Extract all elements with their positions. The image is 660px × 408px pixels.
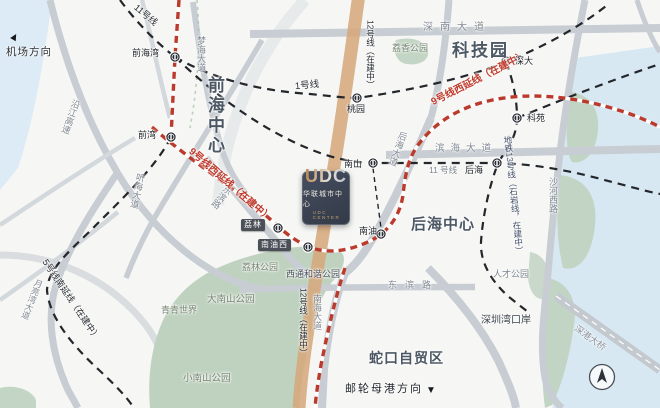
road-dongbin [240,287,475,290]
district-tech-park: 科技园 [452,42,509,59]
park-xiaonanshan-label: 小南山公园 [183,374,231,384]
park-xitong-label: 西通和谐公园 [286,270,340,279]
line5-vertical-underlay [171,0,179,137]
park-rencai-label: 人才公园 [493,270,529,279]
road-shennan-label: 深南大道 [423,23,491,33]
station-icon-keyuan [512,113,522,123]
road-dongbin-label: 东滨路 [388,281,439,290]
station-label-houhai: 后海 [465,166,483,175]
park-dananshan-label: 大南山公园 [207,295,255,305]
line11-label-houhai: 11 号线 [429,166,457,175]
district-shekou-ftz: 蛇口自贸区 [369,351,444,365]
station-icon-nanshan [368,158,378,168]
district-qianhai-center: 前海中心 [206,76,223,156]
station-icon-nanyouxi [303,242,313,252]
line1-label: 1号线 [295,80,320,92]
shenzhen-bay-port-label: 深圳湾口岸 [481,316,531,326]
cruise-port-arrow-icon: ▼ [426,385,436,396]
station-label-keyuan: 科苑 [527,114,545,123]
road-menghai-label: 梦海大道 [196,36,205,72]
park-lilin-label: 荔林公园 [242,263,278,272]
park-lixiang-label: 荔香公园 [392,44,428,53]
station-icon-nanyou [376,229,386,239]
station-label-qianhaiwan: 前海湾 [132,49,159,58]
road-shahexi-label: 沙河西路 [548,177,557,213]
airport-direction-label: 机场方向 [6,47,52,58]
cruise-port-direction-label: 邮轮母港方向 [345,384,423,395]
water-northwest [0,0,52,190]
metro-map: ▲ 机场方向 前海中心 科技园 后海中心 蛇口自贸区 荔香公园 荔林公园 西通和… [0,0,660,408]
station-badge-nanyouxi: 南油西 [258,239,291,251]
station-label-shenda: 深大 [515,57,533,66]
compass-icon [590,365,615,390]
road-binhai-label: 滨海大道 [435,144,497,154]
park-corner-southwest [0,387,36,408]
station-label-taoyuan: 桃园 [347,105,365,114]
station-badge-lilin: 荔林 [241,219,265,231]
district-houhai-center: 后海中心 [411,217,475,232]
line12-label-bottom: 12号线（在建中） [299,288,308,357]
udc-project-logo: UDC 华联城市中心 UDC CENTER [302,171,350,225]
station-icon-houhai [492,158,502,168]
road-nanhai-label: 南海大道 [312,294,321,330]
udc-logo-english-name: UDC CENTER [312,210,340,220]
station-label-nanyou: 南油 [359,227,377,236]
line1-path [175,6,606,98]
station-icon-qianwan [166,132,176,142]
park-qingqing-label: 青青世界 [161,306,197,315]
road-houhai-avenue [345,118,431,273]
station-icon-qianhaiwan [170,52,180,62]
station-icon-taoyuan [352,93,362,103]
station-icon-lilin [273,223,283,233]
station-label-qianwan: 前湾 [138,131,156,140]
udc-logo-text: UDC [305,166,347,187]
line12-label-top: 12号线（在建中） [366,20,375,89]
udc-logo-chinese-name: 华联城市中心 [303,189,349,209]
